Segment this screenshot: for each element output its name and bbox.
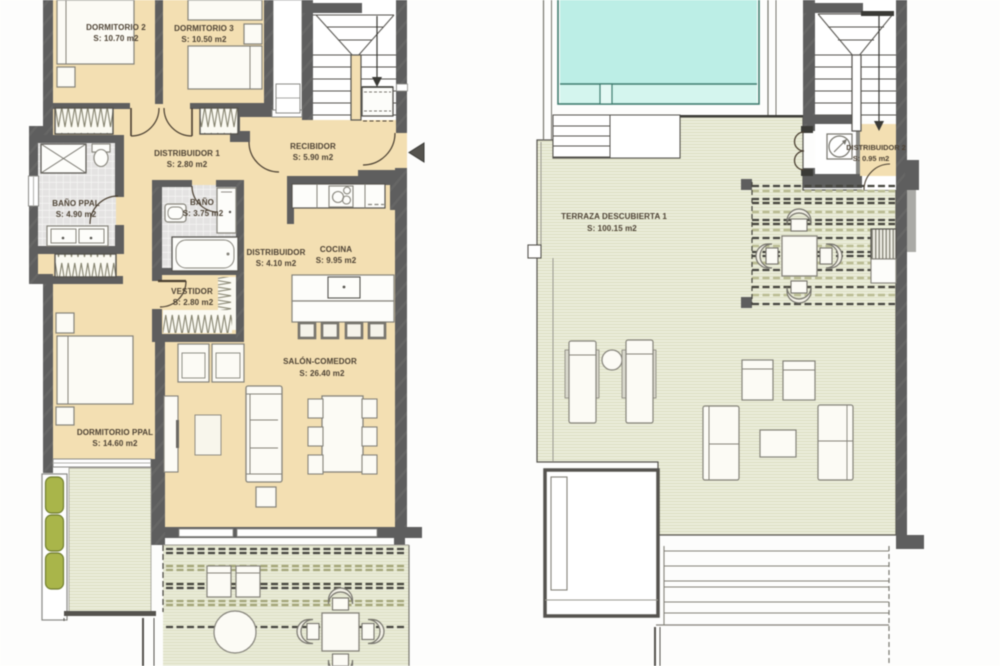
svg-text:SALÓN-COMEDOR: SALÓN-COMEDOR [283,357,357,366]
svg-text:DORMITORIO PPAL: DORMITORIO PPAL [77,428,153,437]
svg-text:S: 3.75 m2: S: 3.75 m2 [183,209,224,218]
svg-text:DISTRIBUIDOR 1: DISTRIBUIDOR 1 [154,149,220,158]
svg-text:DISTRIBUIDOR 2: DISTRIBUIDOR 2 [846,143,906,152]
svg-text:S: 10.50 m2: S: 10.50 m2 [181,35,227,44]
svg-text:TERRAZA DESCUBIERTA 1: TERRAZA DESCUBIERTA 1 [561,212,667,221]
svg-text:S: 4.10 m2: S: 4.10 m2 [256,259,297,268]
svg-text:S: 100.15 m2: S: 100.15 m2 [587,224,637,233]
svg-text:DISTRIBUIDOR: DISTRIBUIDOR [247,248,306,257]
svg-text:COCINA: COCINA [320,245,352,254]
svg-text:S: 2.80 m2: S: 2.80 m2 [173,298,214,307]
svg-text:BAÑO PPAL: BAÑO PPAL [52,199,99,208]
svg-text:S: 14.60 m2: S: 14.60 m2 [92,439,138,448]
svg-text:DORMITORIO 3: DORMITORIO 3 [174,24,234,33]
svg-text:S: 4.90 m2: S: 4.90 m2 [56,210,97,219]
svg-text:S: 26.40 m2: S: 26.40 m2 [299,369,345,378]
svg-text:S: 0.95 m2: S: 0.95 m2 [853,154,890,163]
svg-text:DORMITORIO 2: DORMITORIO 2 [86,23,146,32]
svg-text:BAÑO: BAÑO [190,198,214,207]
svg-text:VESTIDOR: VESTIDOR [171,287,213,296]
svg-text:S: 9.95 m2: S: 9.95 m2 [316,256,357,265]
svg-text:S: 5.90 m2: S: 5.90 m2 [293,153,334,162]
svg-text:S: 10.70 m2: S: 10.70 m2 [93,34,139,43]
svg-text:S: 2.80 m2: S: 2.80 m2 [167,160,208,169]
svg-text:RECIBIDOR: RECIBIDOR [290,142,336,151]
